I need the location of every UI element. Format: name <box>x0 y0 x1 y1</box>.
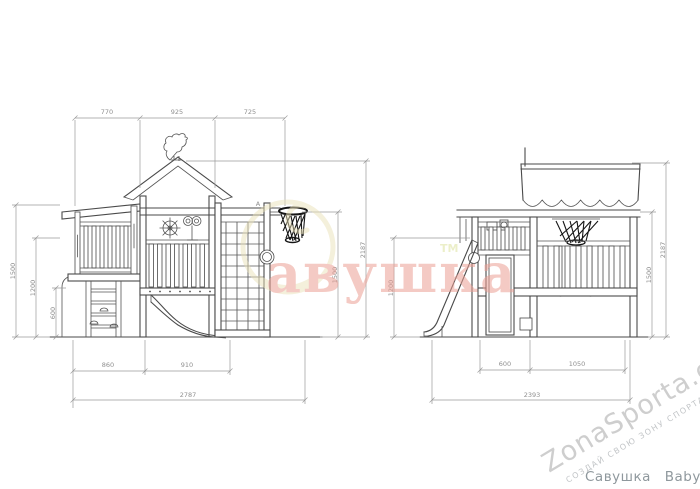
technical-drawing-page: A 770 925 725 1500 1200 600 1500 2187 86… <box>0 0 700 489</box>
site-watermark: ZonaSporta.com СОЗДАЙ СВОЮ ЗОНУ СПОРТА <box>537 330 700 485</box>
handrail <box>62 277 68 337</box>
front-dim-top: 770 925 725 <box>73 108 288 206</box>
brand-tm-mark: ТМ <box>440 242 458 255</box>
front-dim-left: 1500 1200 600 <box>9 203 66 340</box>
front-dim-bottom: 860 910 2787 <box>71 340 308 408</box>
side-dim-right: 1500 2187 <box>632 161 670 340</box>
canopy-roof <box>521 148 640 207</box>
playground-blueprint: A 770 925 725 1500 1200 600 1500 2187 86… <box>0 0 700 489</box>
dim-label: 1200 <box>29 280 37 297</box>
house-post-left <box>140 196 146 337</box>
section-marker: A <box>256 200 261 208</box>
top-beam <box>457 210 640 217</box>
dim-label: 770 <box>101 108 113 116</box>
dim-label: 925 <box>171 108 183 116</box>
site-watermark-text: ZonaSporta.com <box>537 330 700 479</box>
hanging-strap <box>559 246 562 291</box>
dim-label: 910 <box>181 361 193 369</box>
porch-floor <box>68 274 140 281</box>
dim-label: 600 <box>499 360 511 368</box>
dim-label: 2787 <box>180 391 197 399</box>
dim-label: 2393 <box>524 391 541 399</box>
porch-section <box>62 206 140 337</box>
scalloped-edge <box>523 200 638 207</box>
house-interior <box>146 217 209 288</box>
dim-label: 600 <box>49 307 57 319</box>
house-post-right <box>209 196 215 337</box>
side-dim-bottom: 600 1050 2393 <box>430 340 633 404</box>
model-caption: Савушка Baby 7 <box>585 469 700 485</box>
ship-wheel-icon <box>160 218 181 239</box>
porch-roof <box>62 204 140 219</box>
dim-label: 2187 <box>659 242 667 259</box>
binoculars-icon <box>184 217 202 241</box>
dim-label: 1500 <box>9 263 17 280</box>
stairs <box>86 281 121 337</box>
dim-label: 860 <box>102 361 114 369</box>
dim-label: 1500 <box>645 267 653 284</box>
dim-label: 1050 <box>569 360 586 368</box>
rooster-icon <box>164 134 188 161</box>
step-block <box>520 318 532 330</box>
platform <box>140 288 215 295</box>
brand-watermark-text: авушка <box>266 241 517 305</box>
dim-label: 725 <box>244 108 256 116</box>
climbing-grips <box>90 308 118 327</box>
